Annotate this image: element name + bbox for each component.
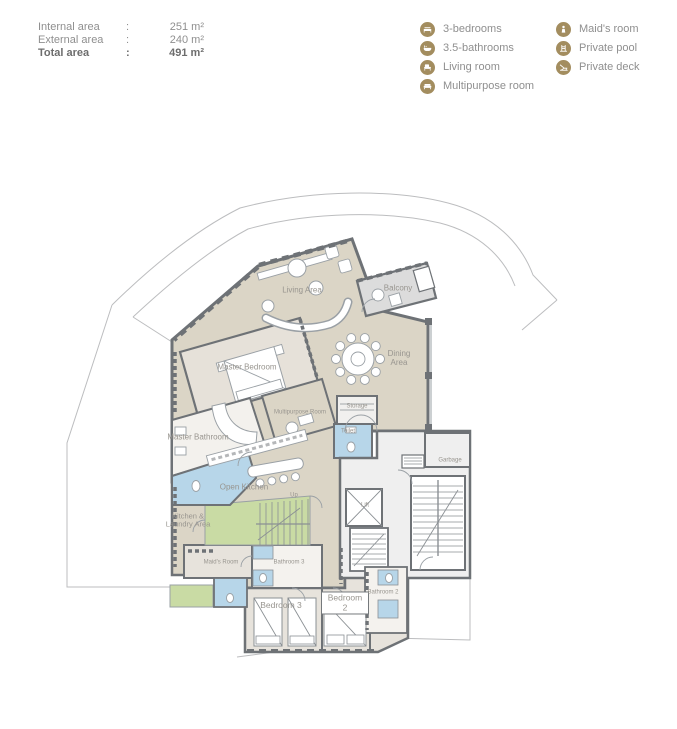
room-label-bathroom-2: Bathroom 2 [365, 590, 401, 597]
room-label-storage: Storage [337, 404, 377, 411]
main-stairwell [411, 476, 465, 570]
room-label-balcony: Balcony [368, 285, 428, 294]
room-label-master-bathroom: Master Bathroom [165, 434, 231, 443]
room-label-lift: Lift [350, 503, 380, 510]
room-label-up: Up [284, 493, 304, 500]
room-label-bathroom-3: Bathroom 3 [271, 560, 307, 567]
service-stairs [350, 528, 388, 571]
room-label-kitchen-laundry: Kitchen & Laundry Area [162, 513, 214, 530]
room-label-multipurpose-room: Multipurpose Room [272, 410, 328, 417]
room-label-garbage: Garbage [428, 458, 472, 465]
room-label-open-kitchen: Open Kitchen [199, 484, 289, 493]
room-label-maids-room: Maid's Room [188, 560, 254, 567]
bathroom-3 [252, 545, 322, 588]
room-label-master-bedroom: Master Bedroom [215, 364, 279, 373]
floor-plan-page: Internal area : 251 m² External area : 2… [0, 0, 677, 729]
room-label-living-area: Living Area [282, 287, 322, 296]
deck-green-patch [170, 585, 213, 607]
floor-plan-svg [0, 0, 677, 729]
room-label-dining-area: Dining Area [379, 350, 419, 368]
room-label-toilet: Toilet [328, 429, 368, 436]
room-label-bedroom-3: Bedroom 3 [258, 601, 304, 611]
room-label-bedroom-2: Bedroom 2 [321, 591, 369, 614]
